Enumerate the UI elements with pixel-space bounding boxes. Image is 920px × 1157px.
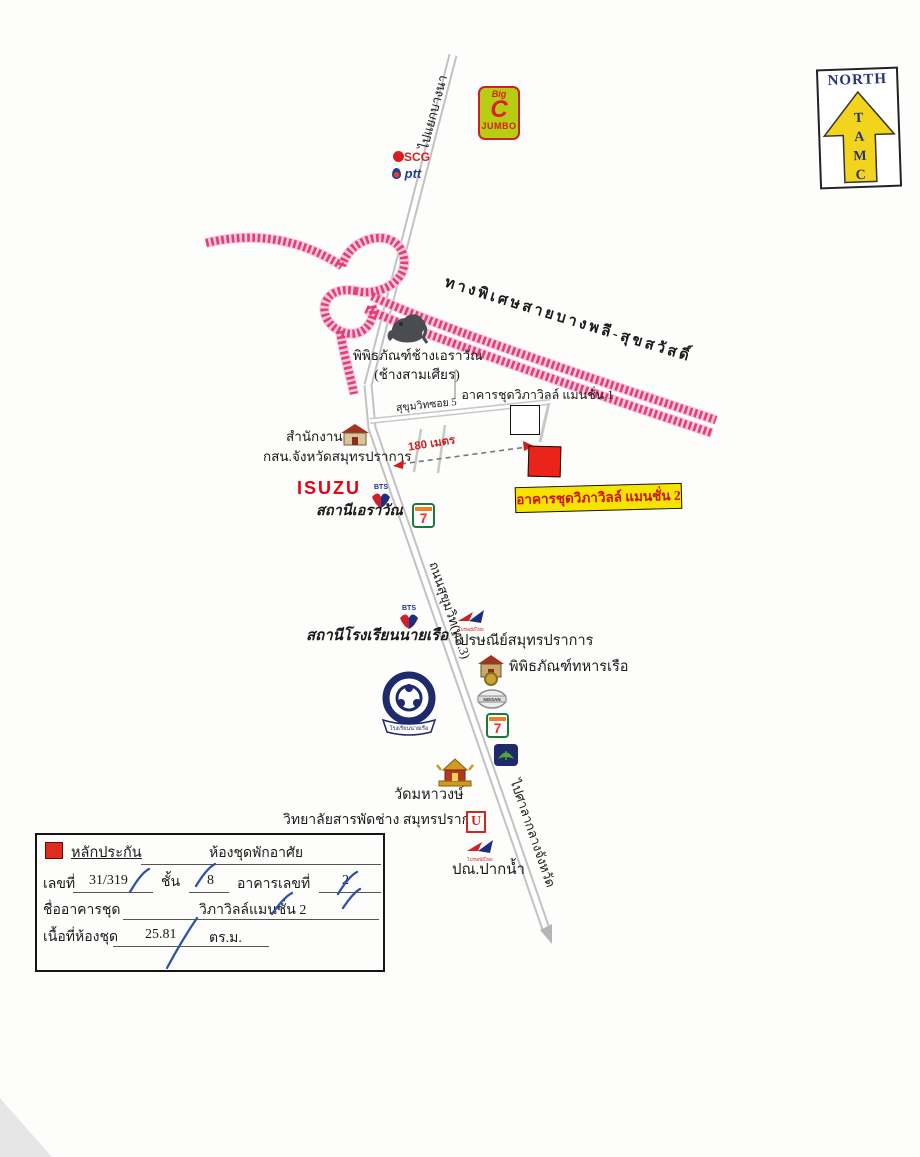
temple-label: วัดมหาวงษ์: [394, 787, 464, 804]
erawan-elephant-icon: [383, 310, 429, 348]
road-corner-stub: [540, 403, 549, 442]
temple-icon: [434, 756, 476, 788]
scg-logo: SCG: [393, 151, 430, 165]
office-label-line2: กสน.จังหวัดสมุทรปราการ: [263, 449, 411, 465]
tesco-lotus-icon: [493, 743, 519, 767]
svg-text:7: 7: [420, 510, 428, 526]
map-roads-layer: [0, 0, 920, 1157]
ptt-logo: ptt: [392, 167, 421, 182]
thailand-post-icon-1: ไปรษณีย์ไทย: [456, 608, 486, 634]
erawan-museum-label: พิพิธภัณฑ์ช้างเอราวัณ (ช้างสามเศียร): [353, 348, 481, 382]
mansion2-building-box: [528, 446, 562, 478]
car-dealer-icon: [484, 672, 498, 686]
paknam-post-label: ปณ.ปากน้ำ: [452, 862, 525, 879]
svg-text:ไปรษณีย์ไทย: ไปรษณีย์ไทย: [457, 626, 484, 632]
svg-text:BTS: BTS: [374, 484, 388, 491]
seven-eleven-icon-1: 7: [412, 503, 435, 528]
bigc-logo: Big C JUMBO: [478, 86, 520, 140]
page-corner-shade: [0, 1098, 52, 1157]
mansion1-label: อาคารชุดวิภาวิลล์ แมนชั่น 1: [460, 388, 615, 402]
svg-text:7: 7: [494, 720, 502, 736]
office-label-line1: สำนักงาน: [286, 429, 343, 445]
office-building-icon: [337, 421, 373, 449]
thailand-post-icon-2: ไปรษณีย์ไทย: [465, 838, 495, 864]
svg-text:BTS: BTS: [402, 605, 416, 612]
mansion2-highlight-label: อาคารชุดวิภาวิลล์ แมนชั่น 2: [515, 483, 683, 513]
college-u-logo: U: [466, 811, 486, 833]
nissan-logo: NISSAN: [476, 688, 508, 710]
svg-text:NISSAN: NISSAN: [483, 697, 501, 702]
isuzu-logo: ISUZU: [297, 478, 361, 499]
college-label: วิทยาลัยสารพัดช่าง สมุทรปราการ: [283, 813, 486, 829]
naval-museum-label: พิพิธภัณฑ์ทหารเรือ: [509, 659, 629, 676]
erawan-station-label: สถานีเอราวัณ: [316, 503, 403, 520]
svg-text:โรงเรียนนายเรือ: โรงเรียนนายเรือ: [390, 724, 429, 732]
ptt-flame-icon: [392, 168, 401, 179]
mansion1-building-box: [510, 405, 540, 435]
naval-academy-emblem: โรงเรียนนายเรือ: [378, 670, 440, 738]
scg-icon: [393, 151, 404, 162]
naval-station-label: สถานีโรงเรียนนายเรือ: [306, 628, 448, 645]
map-page: NORTH T A M C ไปแยกบางนา ทางพิเศษสายบางพ…: [0, 0, 920, 1157]
post-office-label: ไปรษณีย์สมุทรปราการ: [452, 633, 593, 650]
seven-eleven-icon-2: 7: [486, 713, 509, 738]
